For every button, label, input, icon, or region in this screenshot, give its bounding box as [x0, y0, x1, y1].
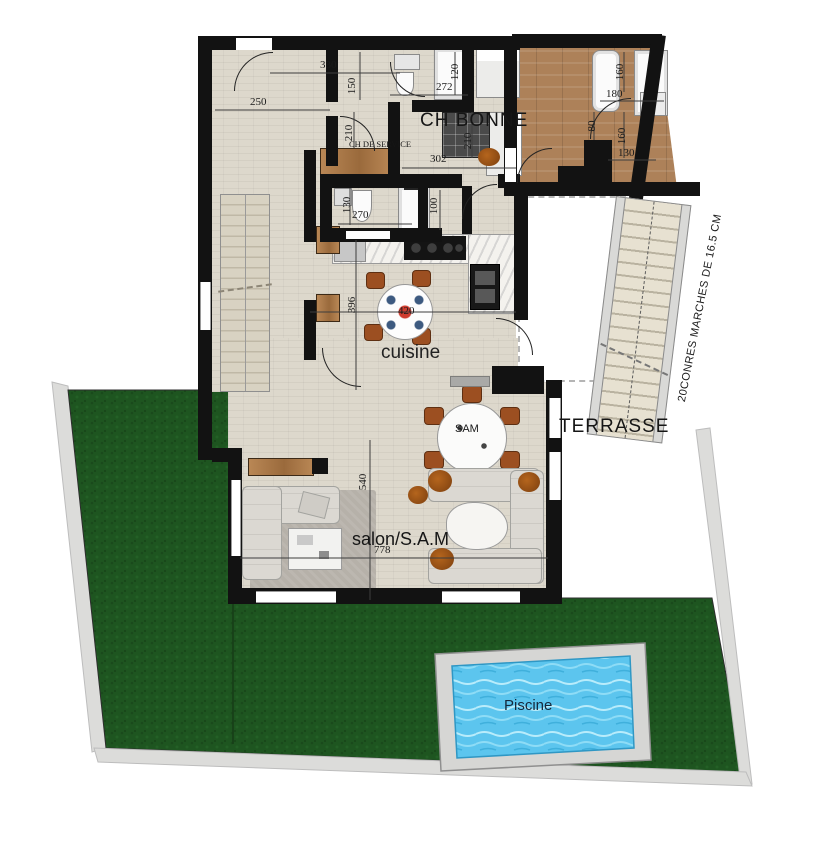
dim-landing-80: 80: [586, 113, 598, 139]
dim-kitchen-396: 396: [346, 292, 358, 318]
wall-bonne-bottom: [320, 174, 462, 188]
label-ch-bonne: CH BONNE: [420, 110, 528, 132]
plant: [518, 472, 540, 492]
window: [256, 591, 336, 603]
label-salon: salon/S.A.M: [352, 529, 449, 550]
wall-bath1-right: [462, 46, 474, 104]
wall-kitchen-right: [514, 196, 528, 320]
wall-hall-int: [326, 46, 338, 102]
label-piscine: Piscine: [504, 697, 552, 714]
door-gap: [505, 148, 516, 182]
coffee-table-organic: [446, 502, 508, 550]
dim-bonne-210: 210: [462, 128, 474, 154]
plant: [430, 548, 454, 570]
dim-stairs-160: 160: [616, 123, 628, 149]
dim-bath1-120: 120: [449, 59, 461, 85]
floor-plan-page: 20CONRES MARCHES DE 16.5 CM CH BONNE CH …: [0, 0, 828, 841]
dim-wc-270: 270: [352, 209, 369, 221]
dim-bath2-160: 160: [614, 59, 626, 85]
wall-hall100-left: [418, 186, 428, 234]
entry-door-gap: [236, 38, 272, 50]
dim-bath2-180: 180: [606, 88, 623, 100]
sam-table: [437, 403, 507, 473]
door-gap: [346, 231, 390, 239]
plant: [408, 486, 428, 504]
dim-bonne-302: 302: [430, 153, 447, 165]
dim-salon-540: 540: [357, 469, 369, 495]
wall-left: [198, 36, 212, 460]
window: [442, 591, 520, 603]
window: [200, 282, 211, 330]
dim-salon-778: 778: [374, 544, 391, 556]
kitchen-cabinet: [316, 294, 340, 322]
stair-centerline: [245, 195, 246, 391]
tv-unit: [312, 458, 328, 474]
sam-chair: [462, 385, 482, 403]
coffee-table: [288, 528, 342, 570]
dining-chair: [412, 270, 431, 287]
dim-hall-330: 330: [320, 59, 337, 71]
dining-chair: [366, 272, 385, 289]
wall-wc-left: [320, 186, 332, 234]
label-cuisine: cuisine: [381, 342, 440, 364]
dim-stairs-130: 130: [618, 147, 635, 159]
interior-staircase: [220, 194, 270, 392]
terrace-step-wall: [492, 366, 544, 394]
dim-kitchen-420: 420: [398, 305, 415, 317]
window: [549, 452, 561, 500]
pouf: [478, 148, 500, 166]
double-oven: [470, 264, 500, 310]
dim-service-210: 210: [343, 120, 355, 146]
sideboard: [248, 458, 314, 476]
label-sam: SAM: [455, 423, 479, 435]
wall-corridor: [304, 300, 316, 360]
dim-hall-150: 150: [346, 73, 358, 99]
window: [231, 480, 241, 556]
terrace-bench: [450, 376, 490, 387]
wall-corridor: [304, 150, 316, 242]
dim-entry-250: 250: [250, 96, 267, 108]
wall-wood-L-b: [584, 140, 612, 196]
dim-hall-100: 100: [428, 193, 440, 219]
sofa-left: [242, 486, 282, 580]
wall-top-wood: [512, 34, 662, 48]
plant: [428, 470, 452, 492]
label-ch-de-service: CH DE SERVICE: [349, 139, 411, 149]
label-terrasse: TERRASSE: [559, 416, 669, 438]
wall-hall-int: [326, 116, 338, 166]
